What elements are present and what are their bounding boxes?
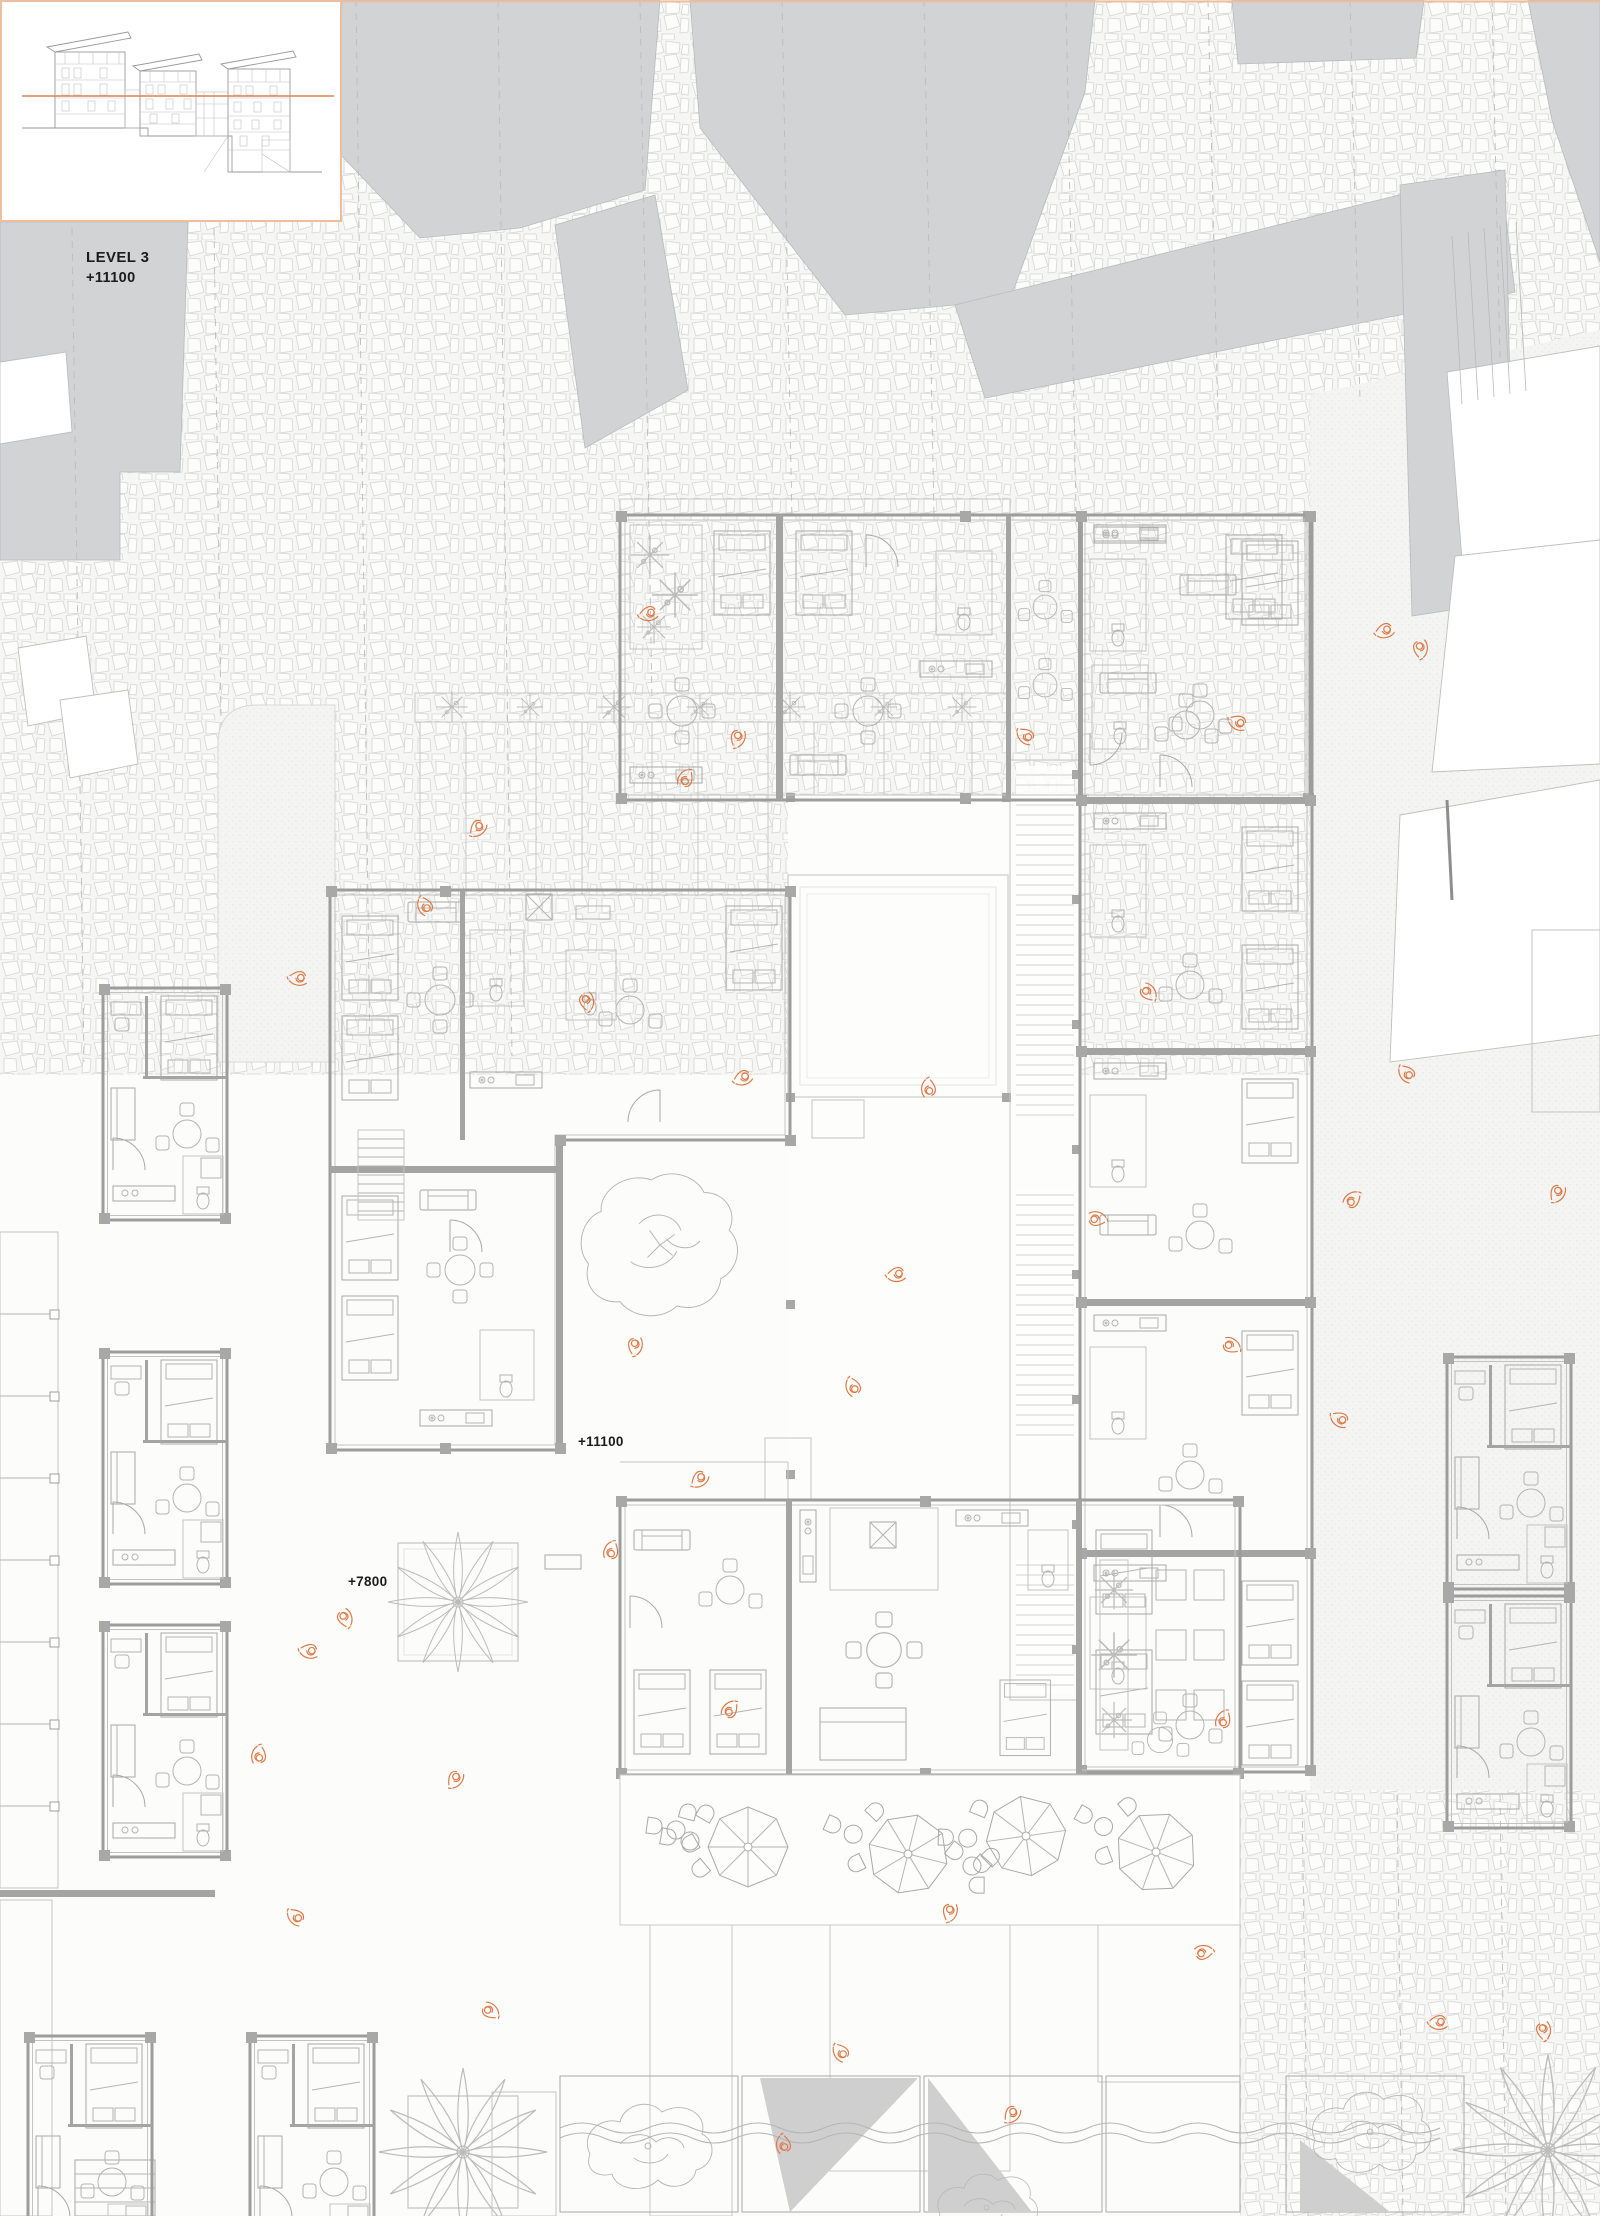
- plan-canvas: LEVEL 3 +11100 +11100 +7800: [0, 0, 1600, 2216]
- floor-plan-sheet: LEVEL 3 +11100 +11100 +7800: [0, 0, 1600, 2216]
- plan-level-annotation-upper: +11100: [578, 1434, 624, 1449]
- context-building-mass: [1232, 0, 1424, 64]
- plan-level-annotation-lower: +7800: [348, 1574, 387, 1589]
- level-title: LEVEL 3: [86, 249, 149, 266]
- level-elevation: +11100: [86, 270, 136, 286]
- south-terrace: [620, 1775, 1240, 1925]
- skylight-void: [788, 875, 1008, 1097]
- pedestrian-ramp: [218, 705, 335, 1062]
- elevation-key-inset: [1, 1, 341, 221]
